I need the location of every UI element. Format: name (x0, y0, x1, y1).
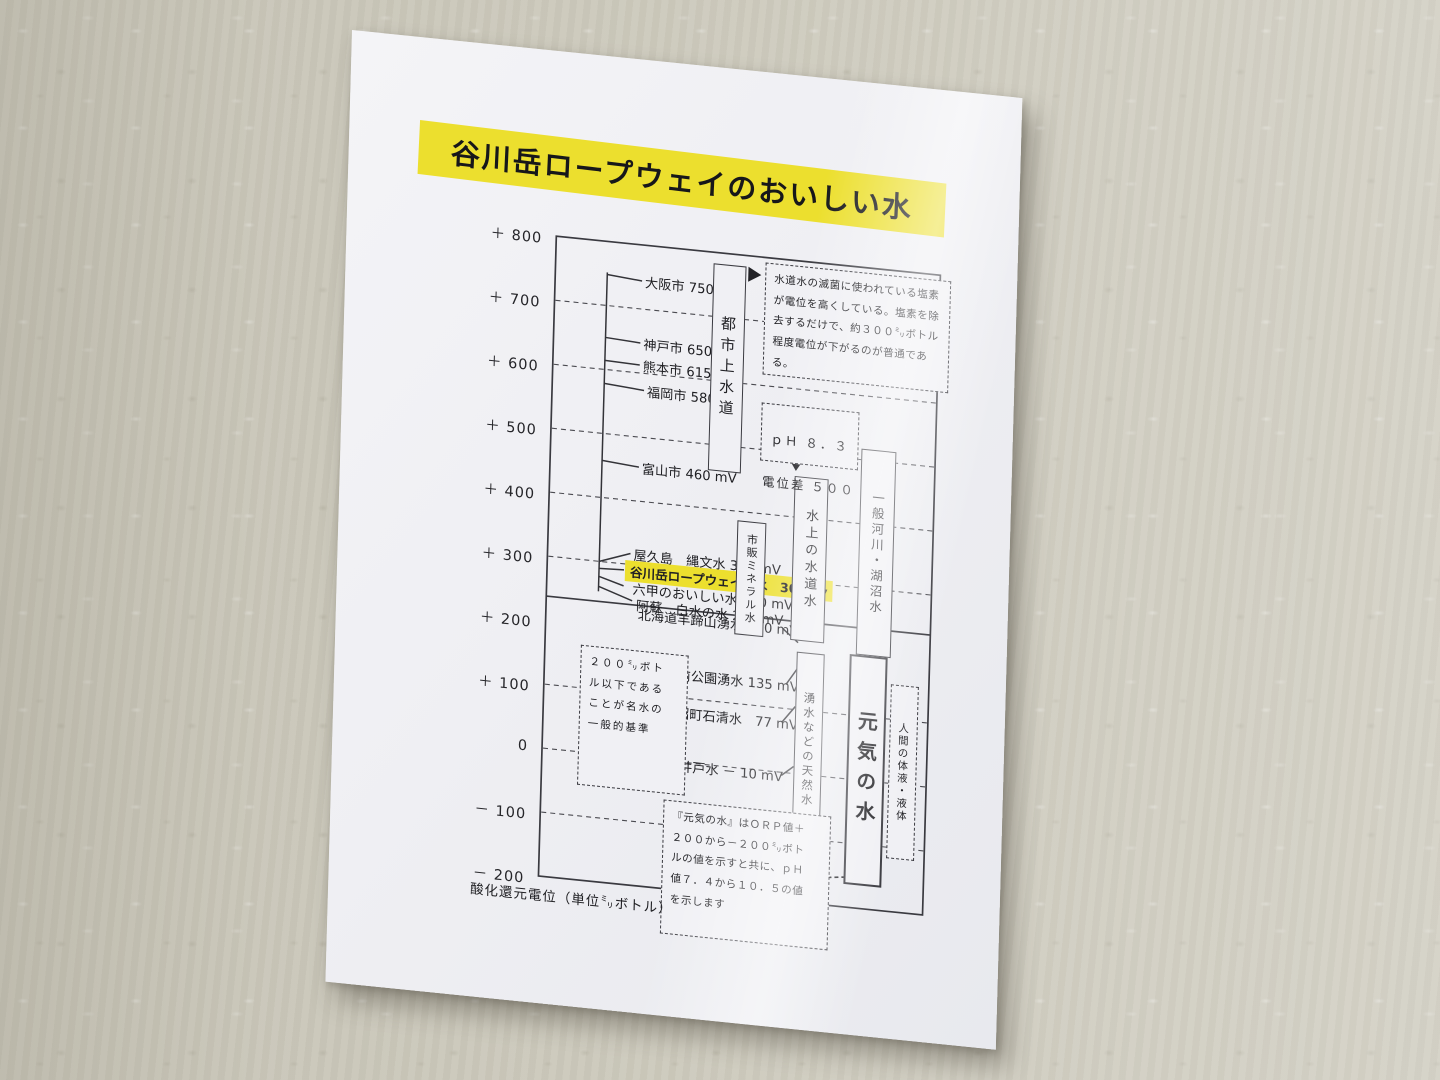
orp-chart: ＋ 800 ＋ 700 ＋ 600 ＋ 500 ＋ 400 ＋ 300 ＋ 20… (325, 30, 1022, 1050)
potential-difference: 電位差 ５００ (760, 470, 856, 501)
y-tick-0: 0 (448, 730, 528, 754)
y-tick-neg100: － 100 (446, 794, 526, 823)
y-tick-700: ＋ 700 (460, 283, 540, 312)
note-chlorine: 水道水の滅菌に使われている塩素 が電位を高くしている。塩素を除 去するだけで、約… (763, 262, 952, 393)
y-tick-400: ＋ 400 (455, 475, 535, 504)
band-genki-water: 元気の水 (843, 654, 887, 888)
band-rivers-lakes-water: 一般河川・湖沼水 (856, 449, 897, 658)
note-ph: ｐＨ ８．３ 電位差 ５００ (760, 402, 859, 470)
y-tick-500: ＋ 500 (457, 411, 537, 440)
note-genki-water: 『元気の水』はＯＲＰ値＋ ２００から－２００㍉ボト ルの値を示すと共に、ｐＨ 値… (660, 799, 831, 950)
y-tick-800: ＋ 800 (462, 219, 542, 248)
x-axis-caption: 酸化還元電位（単位㍉ボトル） (470, 877, 673, 918)
ph-value: ｐＨ ８．３ (761, 428, 857, 459)
band-commercial-mineral-water: 市販ミネラル水 (734, 520, 766, 637)
note-meisui-criterion: ２００㍉ボト ル以下である ことが名水の 一般的基準 (577, 645, 689, 796)
y-tick-600: ＋ 600 (459, 347, 539, 376)
poster-paper: 谷川岳ロープウェイのおいしい水 (325, 30, 1022, 1050)
y-tick-200: ＋ 200 (451, 603, 531, 632)
y-tick-300: ＋ 300 (453, 539, 533, 568)
y-tick-100: ＋ 100 (450, 667, 530, 696)
band-city-tap-water: 都市上水道 (708, 263, 747, 473)
band-human-body-fluids: 人間の体液・液体 (886, 684, 919, 861)
